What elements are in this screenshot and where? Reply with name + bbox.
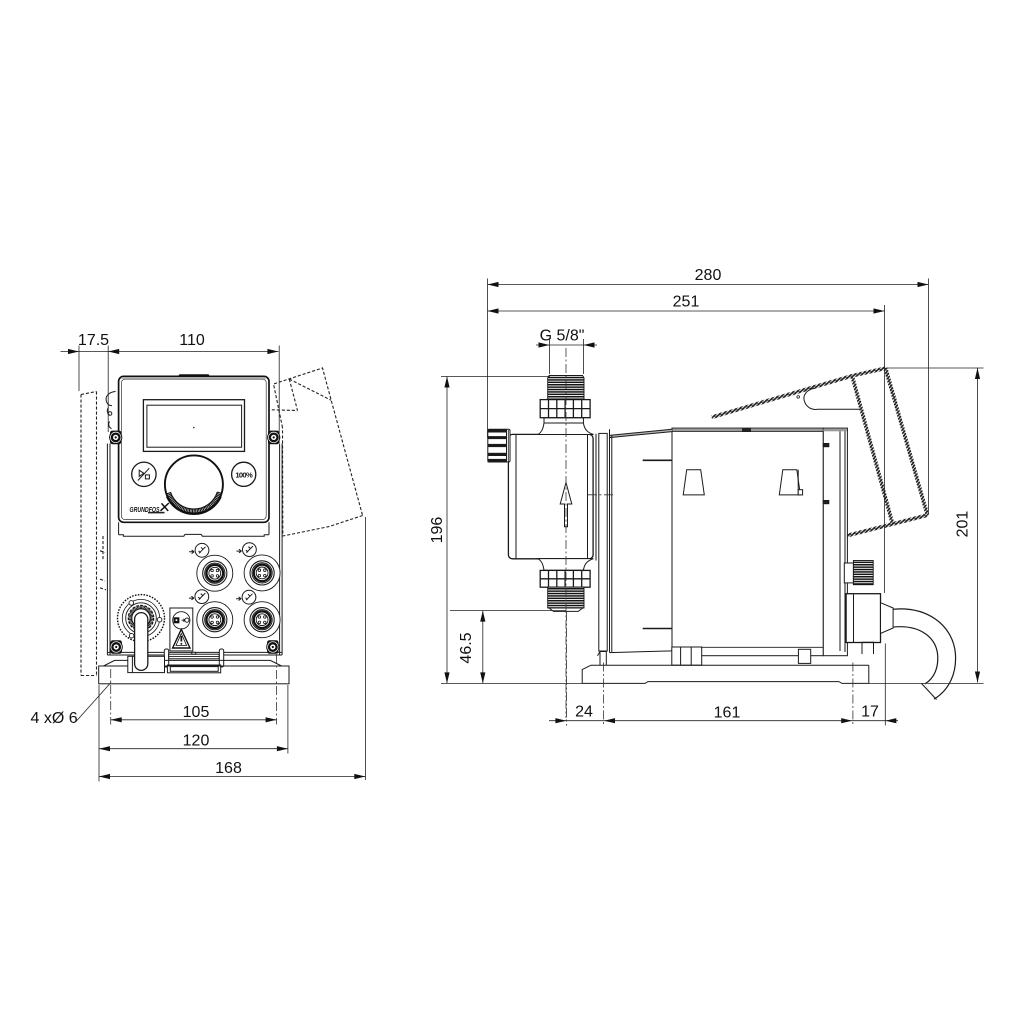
- svg-text:24: 24: [575, 704, 593, 721]
- svg-text:251: 251: [673, 294, 700, 311]
- svg-text:201: 201: [955, 511, 972, 538]
- svg-text:161: 161: [714, 705, 741, 722]
- svg-text:46.5: 46.5: [458, 632, 475, 663]
- svg-text:17: 17: [861, 704, 879, 721]
- svg-text:168: 168: [215, 760, 242, 777]
- svg-text:196: 196: [429, 517, 446, 544]
- svg-text:110: 110: [179, 332, 205, 349]
- svg-text:105: 105: [183, 704, 210, 721]
- svg-text:280: 280: [695, 267, 722, 284]
- svg-text:G 5/8": G 5/8": [540, 328, 585, 345]
- svg-text:100%: 100%: [235, 471, 253, 480]
- svg-text:4 xØ 6: 4 xØ 6: [31, 710, 78, 727]
- svg-text:120: 120: [183, 733, 210, 750]
- svg-text:17.5: 17.5: [78, 332, 109, 349]
